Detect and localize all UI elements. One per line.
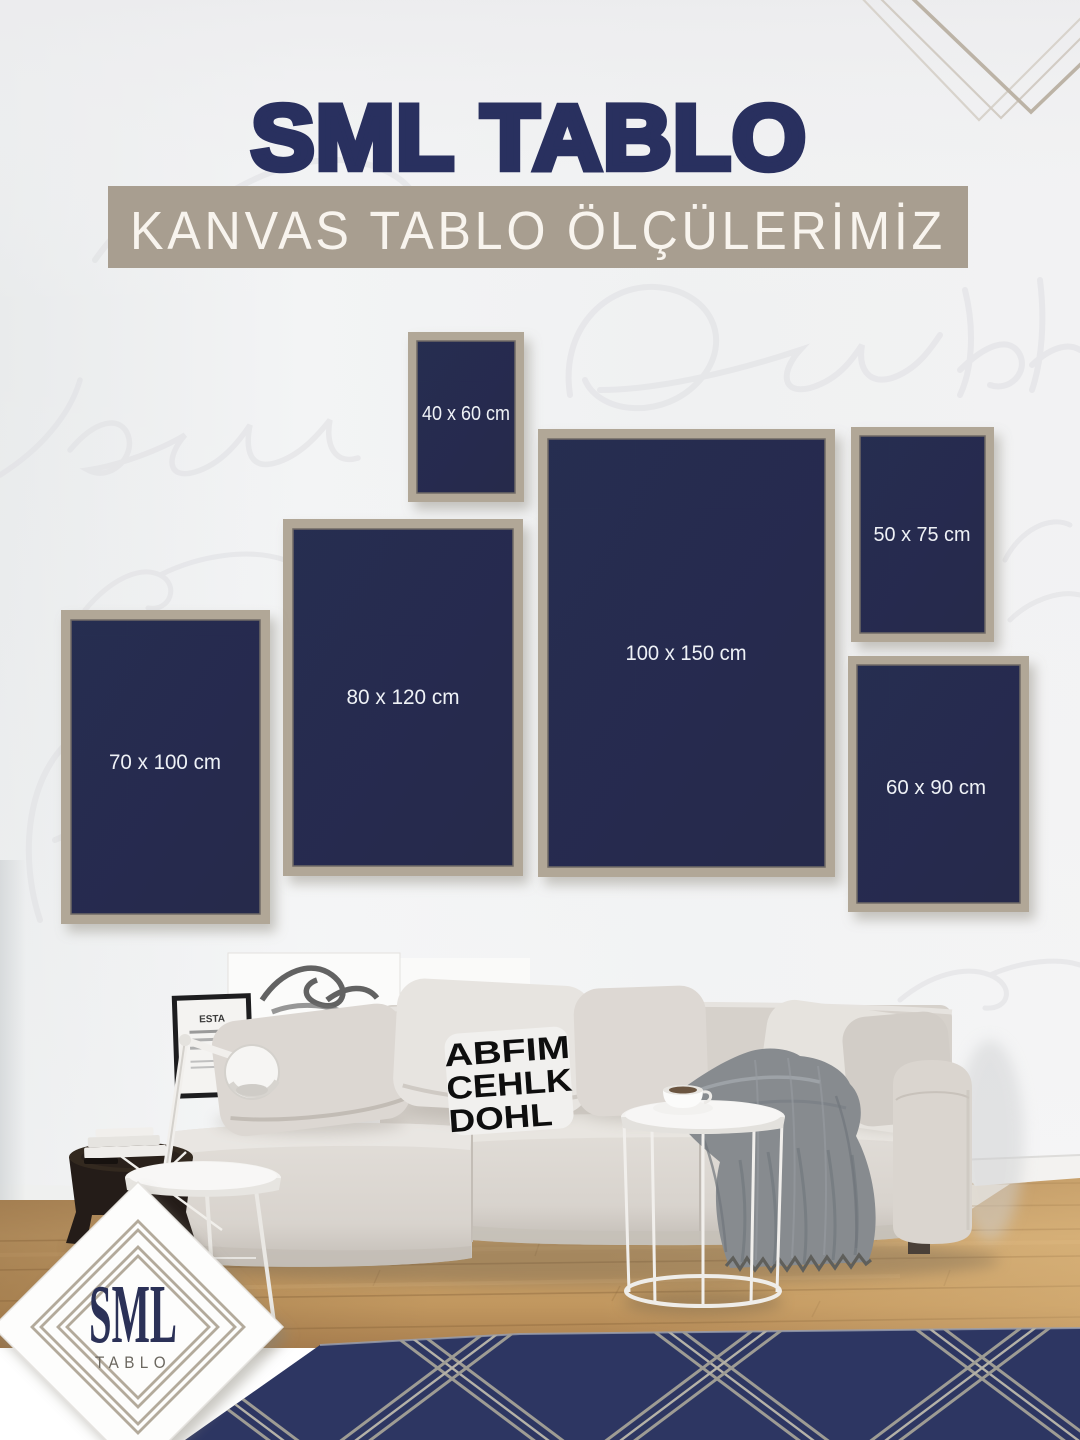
- svg-text:60 x 90 cm: 60 x 90 cm: [886, 777, 986, 799]
- svg-text:TABLO: TABLO: [95, 1353, 171, 1372]
- svg-text:70 x 100 cm: 70 x 100 cm: [109, 751, 221, 774]
- svg-text:80 x 120 cm: 80 x 120 cm: [347, 686, 460, 709]
- svg-text:100 x 150 cm: 100 x 150 cm: [626, 642, 747, 665]
- svg-text:50 x 75 cm: 50 x 75 cm: [874, 524, 971, 546]
- svg-text:DOHL: DOHL: [447, 1096, 553, 1139]
- svg-text:40 x 60 cm: 40 x 60 cm: [422, 403, 510, 425]
- svg-text:SML TABLO: SML TABLO: [251, 87, 807, 189]
- svg-text:KANVAS TABLO ÖLÇÜLERİMİZ: KANVAS TABLO ÖLÇÜLERİMİZ: [130, 201, 946, 261]
- svg-text:ESTA: ESTA: [199, 1014, 225, 1026]
- svg-text:SML: SML: [89, 1268, 177, 1361]
